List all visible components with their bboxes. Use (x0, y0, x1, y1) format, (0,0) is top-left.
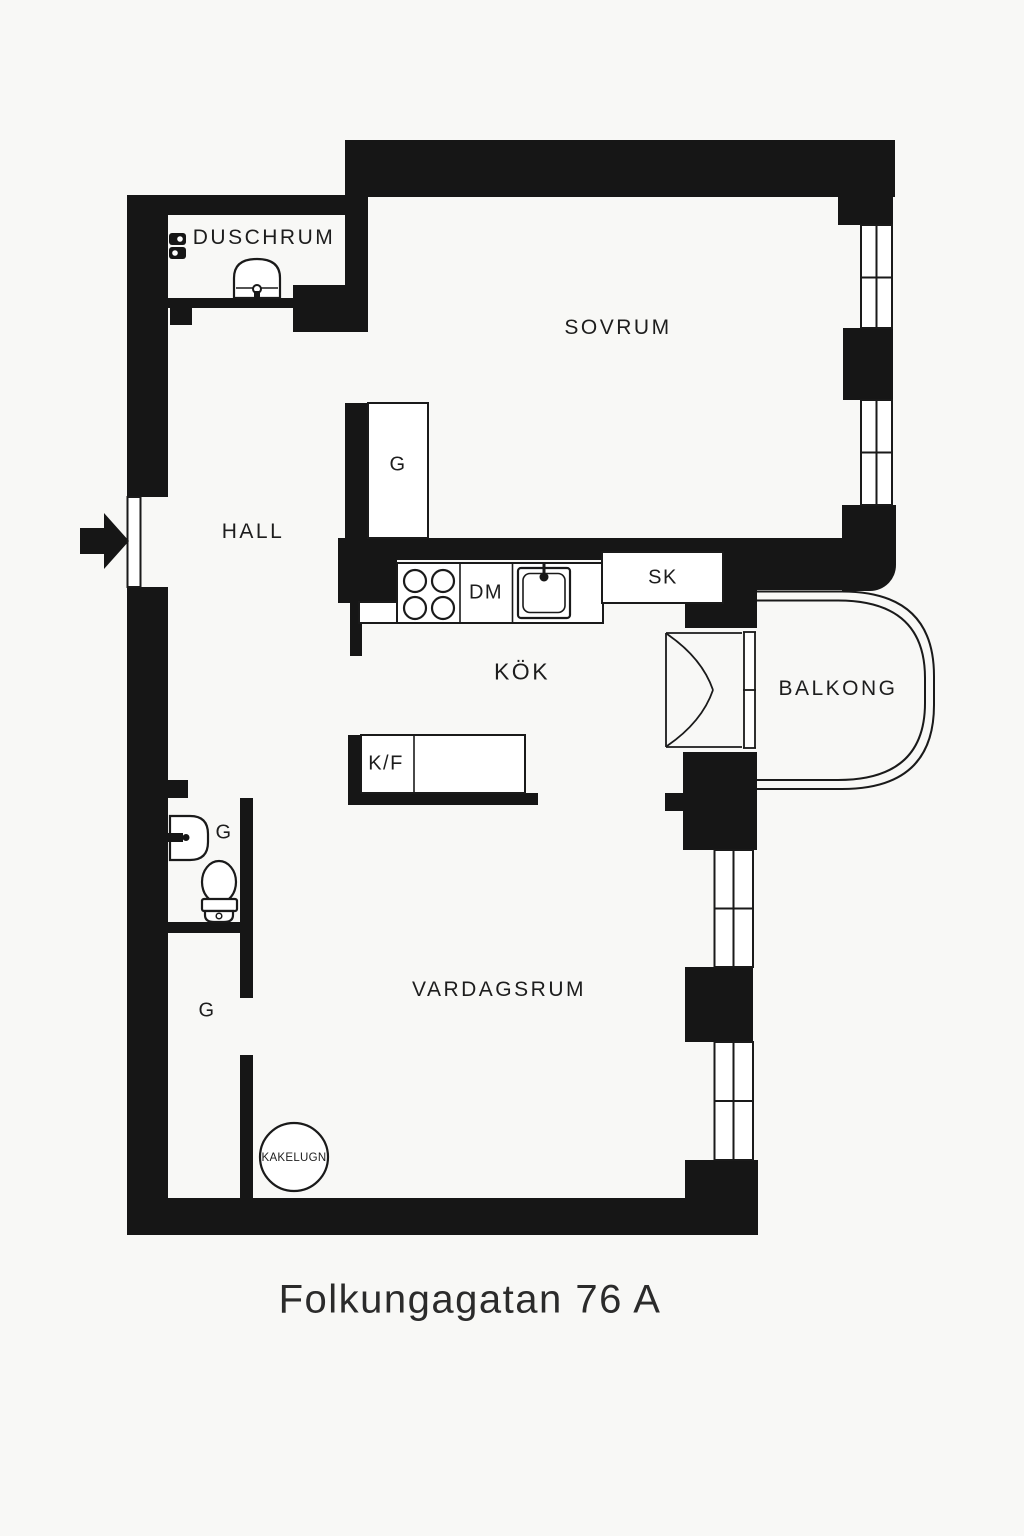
wall-left-lower (127, 587, 168, 1235)
wall-kitchen-stub (350, 603, 362, 656)
label-wardrobe-bedroom: G (389, 454, 406, 477)
wall-top-main (345, 140, 895, 197)
wall-duschrum-bottom (168, 298, 293, 308)
room-label-kok: KÖK (494, 659, 550, 686)
wall-closet-right-lower (240, 1055, 253, 1198)
wc-sink-icon (167, 816, 208, 860)
wall-kf-base (348, 793, 538, 805)
label-fridge-freezer: K/F (368, 753, 404, 776)
label-cabinet: SK (648, 567, 678, 590)
stove-icon (404, 570, 454, 619)
wall-duschrum-right (293, 285, 368, 332)
wall-wc-stub (168, 780, 188, 798)
window-icon (861, 400, 892, 505)
wall-left-upper (127, 195, 168, 497)
wall-duschrum-step (170, 308, 192, 325)
plan-title: Folkungagatan 76 A (279, 1278, 662, 1323)
wall-nub (665, 793, 685, 811)
wall-living-bottom-right (685, 1160, 758, 1235)
entry-door (128, 497, 141, 587)
room-label-duschrum: DUSCHRUM (193, 226, 336, 250)
window-icon (715, 850, 754, 967)
wall-closet-right-upper (240, 933, 253, 998)
balcony-door (666, 630, 756, 750)
window-icon (715, 1042, 754, 1160)
toilet-icon (202, 861, 237, 922)
wall-wc-bottom (168, 922, 253, 933)
shower-basin-icon (234, 259, 280, 302)
label-tiled-stove: KAKELUGN (261, 1152, 326, 1164)
wall-window-pier-bedroom (843, 328, 893, 400)
wall-balcony-lower (683, 752, 757, 850)
label-dishwasher: DM (469, 582, 503, 605)
entry-arrow-icon (80, 513, 129, 569)
wall-right-top (838, 187, 893, 225)
floor-plan: DUSCHRUM SOVRUM HALL KÖK BALKONG VARDAGS… (0, 0, 1024, 1536)
wall-wc-right (240, 798, 253, 923)
room-label-balkong: BALKONG (778, 677, 897, 701)
wall-right-corner (842, 505, 896, 591)
wall-hall-bedroom-lower (345, 403, 368, 538)
room-label-vardagsrum: VARDAGSRUM (412, 978, 586, 1002)
corner-fixture-icon (169, 233, 186, 259)
wall-window-pier-living (685, 967, 753, 1042)
room-label-sovrum: SOVRUM (564, 316, 671, 340)
wall-bottom (127, 1198, 757, 1235)
label-wardrobe-hall: G (198, 1000, 215, 1023)
wall-balcony-door-lintel (685, 603, 757, 628)
label-wardrobe-wc: G (215, 822, 232, 845)
window-icon (861, 225, 892, 328)
kitchen-sink-icon (518, 563, 570, 618)
room-label-hall: HALL (222, 520, 285, 544)
